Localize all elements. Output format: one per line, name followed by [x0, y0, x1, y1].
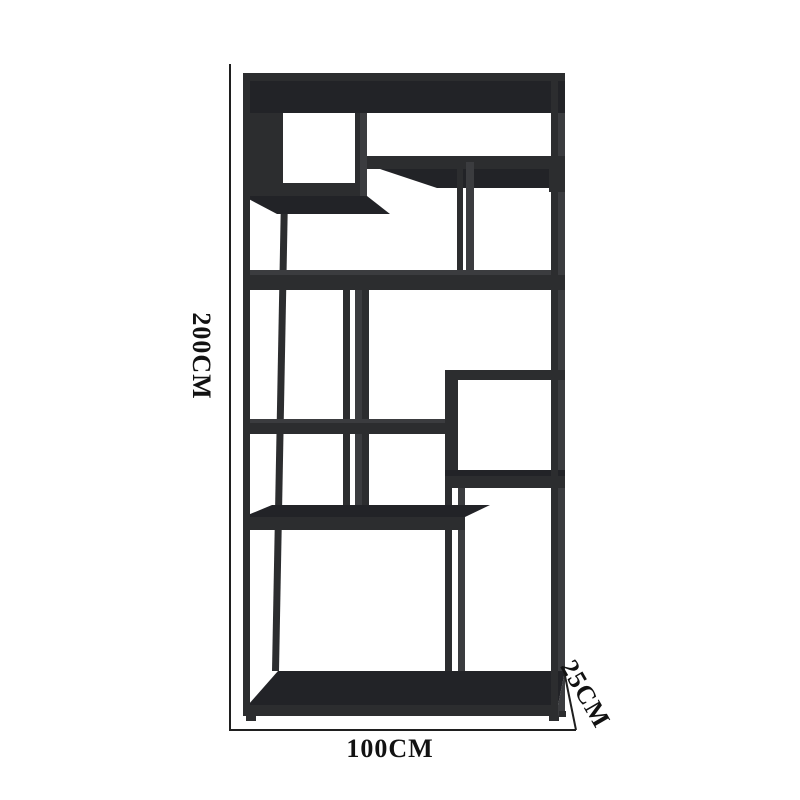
shelf-under-cube	[243, 196, 390, 214]
left-shelf	[243, 419, 447, 434]
lower-shelf	[243, 505, 490, 530]
center-divider	[343, 290, 369, 518]
height-dimension-label: 200CM	[183, 276, 219, 436]
middle-shelf	[243, 270, 565, 290]
bookshelf-illustration	[0, 0, 800, 800]
top-panel	[243, 73, 565, 113]
width-dimension-label: 100CM	[310, 731, 470, 767]
product-dimension-diagram: 200CM 100CM 25CM	[0, 0, 800, 800]
base-panel	[245, 671, 566, 721]
